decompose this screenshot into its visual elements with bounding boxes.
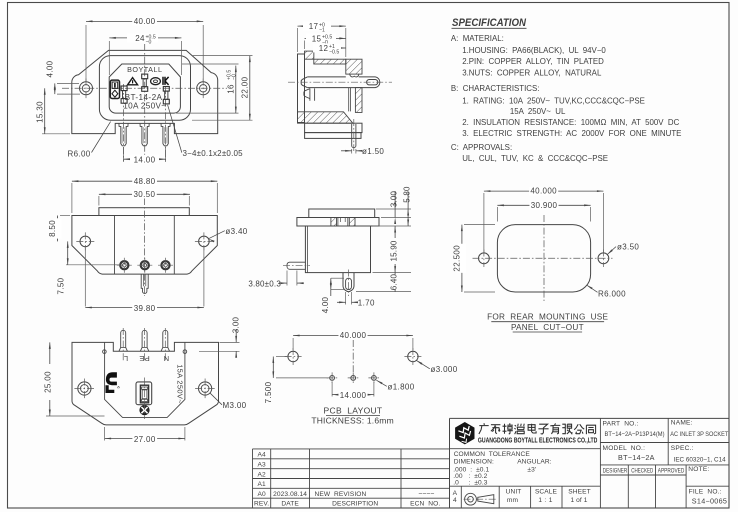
svg-text:4.00: 4.00 (45, 60, 54, 77)
svg-text:5.80: 5.80 (403, 186, 412, 203)
svg-text:−0.5: −0.5 (329, 50, 339, 56)
svg-text:SPEC.:: SPEC.: (671, 445, 694, 452)
svg-text:1.HOUSING: PA66(BLACK), UL: 1.HOUSING: PA66(BLACK), UL 94V−0 (462, 46, 606, 55)
svg-text:DESCRIPTION: DESCRIPTION (332, 501, 378, 508)
svg-text:SHEET: SHEET (568, 488, 590, 495)
svg-text:ECN NO.: ECN NO. (410, 501, 440, 508)
svg-text:REV.: REV. (254, 501, 269, 508)
svg-text:15A 250V~ UL: 15A 250V~ UL (510, 107, 566, 116)
svg-text:22.00: 22.00 (240, 76, 249, 98)
svg-text:7.500: 7.500 (264, 381, 273, 403)
svg-text:8.50: 8.50 (48, 220, 57, 237)
svg-text:A: MATERIAL:: A: MATERIAL: (451, 34, 504, 43)
svg-text:40.000: 40.000 (530, 187, 557, 196)
svg-text:BT−14−2A−P13P14(M): BT−14−2A−P13P14(M) (605, 431, 665, 438)
svg-text:3.00: 3.00 (390, 190, 399, 207)
svg-text:1 : 1: 1 : 1 (538, 497, 552, 504)
svg-text:−0: −0 (232, 74, 238, 80)
svg-text:CHECKED: CHECKED (631, 468, 653, 475)
svg-text:FILE NO.:: FILE NO.: (689, 489, 722, 496)
svg-text:L: L (124, 354, 129, 363)
svg-text:14.000: 14.000 (340, 391, 367, 400)
svg-text:N: N (163, 354, 169, 363)
svg-text:±3': ±3' (527, 467, 536, 474)
svg-text:17: 17 (309, 22, 319, 31)
svg-text:3−4±0.1x2±0.05: 3−4±0.1x2±0.05 (183, 149, 244, 158)
svg-text:AC INLET 3P SOCKET: AC INLET 3P SOCKET (670, 431, 728, 438)
svg-text:15A 250V~: 15A 250V~ (176, 364, 185, 404)
svg-text:4.00: 4.00 (321, 296, 330, 313)
svg-text:.0 : ±0.3: .0 : ±0.3 (453, 479, 488, 486)
svg-text:SCALE: SCALE (535, 488, 558, 495)
svg-text:B: CHARACTERISTICS:: B: CHARACTERISTICS: (451, 84, 540, 93)
svg-text:ø3.000: ø3.000 (431, 365, 458, 374)
svg-text:DATE: DATE (281, 501, 299, 508)
svg-text:7.50: 7.50 (56, 277, 65, 294)
svg-text:DESIGNER: DESIGNER (603, 468, 628, 475)
svg-text:BT−14−2A: BT−14−2A (618, 453, 655, 462)
svg-text:NOTE:: NOTE: (688, 466, 709, 473)
svg-text:UL, CUL, TUV, KC & CCC&CQ: UL, CUL, TUV, KC & CCC&CQC−PSE (462, 154, 608, 163)
svg-text:24: 24 (135, 34, 145, 43)
svg-text:2023.08.14: 2023.08.14 (273, 491, 307, 498)
svg-text:GUANGDONG BOYTALL ELECTRONICS: GUANGDONG BOYTALL ELECTRONICS CO.,LTD (478, 437, 598, 444)
svg-text:39.80: 39.80 (134, 304, 156, 313)
svg-text:A3: A3 (257, 461, 265, 468)
svg-text:2.PIN: COPPER ALLOY, TIN P: 2.PIN: COPPER ALLOY, TIN PLATED (462, 57, 604, 66)
svg-text:3. ELECTRIC STRENGTH: AC 2: 3. ELECTRIC STRENGTH: AC 2000V FOR ONE M… (462, 129, 681, 138)
svg-text:15: 15 (312, 35, 322, 44)
svg-text:mm: mm (507, 497, 519, 504)
svg-text:M3.00: M3.00 (223, 401, 247, 410)
svg-text:−0: −0 (146, 40, 152, 46)
svg-text:A: A (453, 490, 458, 497)
svg-text:40.000: 40.000 (340, 331, 367, 340)
svg-text:3.NUTS: COPPER ALLOY, NATUR: 3.NUTS: COPPER ALLOY, NATURAL (462, 68, 602, 77)
svg-text:R6.000: R6.000 (598, 290, 626, 299)
svg-text:3.80±0.3: 3.80±0.3 (248, 279, 281, 288)
svg-text:48.80: 48.80 (134, 177, 156, 186)
svg-text:ANGULAR:: ANGULAR: (517, 459, 552, 466)
svg-text:22.500: 22.500 (453, 245, 462, 272)
svg-text:ø1.800: ø1.800 (388, 383, 415, 392)
svg-text:R6.00: R6.00 (68, 149, 91, 158)
svg-text:15.30: 15.30 (35, 101, 44, 123)
svg-text:S14−0065: S14−0065 (692, 497, 727, 506)
svg-text:DIMENSION:: DIMENSION: (454, 459, 494, 466)
svg-text:COMMON TOLERANCE: COMMON TOLERANCE (454, 451, 531, 458)
svg-text:15.90: 15.90 (390, 240, 399, 261)
svg-text:PCB LAYOUT: PCB LAYOUT (324, 405, 383, 415)
svg-text:4: 4 (453, 497, 457, 504)
svg-text:27.00: 27.00 (134, 435, 156, 444)
svg-text:IEC 60320−1, C14: IEC 60320−1, C14 (674, 456, 726, 463)
svg-text:SPECIFICATION: SPECIFICATION (452, 17, 527, 29)
svg-text:NAME:: NAME: (671, 420, 693, 427)
svg-text:30.900: 30.900 (531, 201, 558, 210)
svg-text:−1: −1 (319, 28, 325, 34)
svg-text:A4: A4 (257, 452, 265, 459)
svg-text:12: 12 (319, 44, 329, 53)
svg-text:40.00: 40.00 (134, 17, 156, 26)
svg-text:FOR REAR MOUNTING USE: FOR REAR MOUNTING USE (487, 313, 608, 322)
svg-text:ø3.40: ø3.40 (225, 227, 247, 236)
svg-text:ø3.50: ø3.50 (617, 243, 639, 252)
svg-text:A1: A1 (257, 481, 265, 488)
svg-text:10A 250V~: 10A 250V~ (123, 102, 166, 111)
svg-text:PANEL CUT−OUT: PANEL CUT−OUT (511, 323, 584, 332)
svg-text:1 of 1: 1 of 1 (570, 497, 587, 504)
svg-text:6.40: 6.40 (390, 273, 399, 290)
svg-text:ø1.50: ø1.50 (362, 147, 384, 156)
svg-text:C: APPROVALS:: C: APPROVALS: (451, 143, 512, 152)
svg-text:A2: A2 (257, 471, 265, 478)
svg-text:30.50: 30.50 (134, 190, 156, 199)
svg-text:−−−−: −−−− (419, 491, 435, 498)
svg-text:1. RATING: 10A 250V~ TUV,K: 1. RATING: 10A 250V~ TUV,KC,CCC&CQC−PSE (462, 96, 645, 105)
svg-text:THICKNESS: 1.6mm: THICKNESS: 1.6mm (311, 415, 394, 425)
svg-text:MODEL NO.:: MODEL NO.: (603, 445, 646, 452)
svg-text:14.00: 14.00 (134, 155, 156, 164)
svg-text:3.00: 3.00 (231, 316, 240, 333)
svg-text:APPROVED: APPROVED (658, 468, 685, 475)
svg-text:BOYTALL: BOYTALL (127, 65, 162, 74)
svg-text:16: 16 (227, 84, 236, 94)
svg-text:UNIT: UNIT (506, 488, 522, 495)
svg-text:NEW REVISION: NEW REVISION (315, 491, 367, 498)
svg-text:PE: PE (139, 354, 150, 363)
svg-text:25.00: 25.00 (43, 371, 52, 393)
svg-text:2. INSULATION RESISTANCE: 1: 2. INSULATION RESISTANCE: 100MΩ MIN, AT … (462, 118, 679, 127)
svg-text:1.70: 1.70 (358, 298, 375, 307)
svg-text:A0: A0 (257, 491, 265, 498)
svg-text:PART NO.:: PART NO.: (603, 421, 639, 428)
